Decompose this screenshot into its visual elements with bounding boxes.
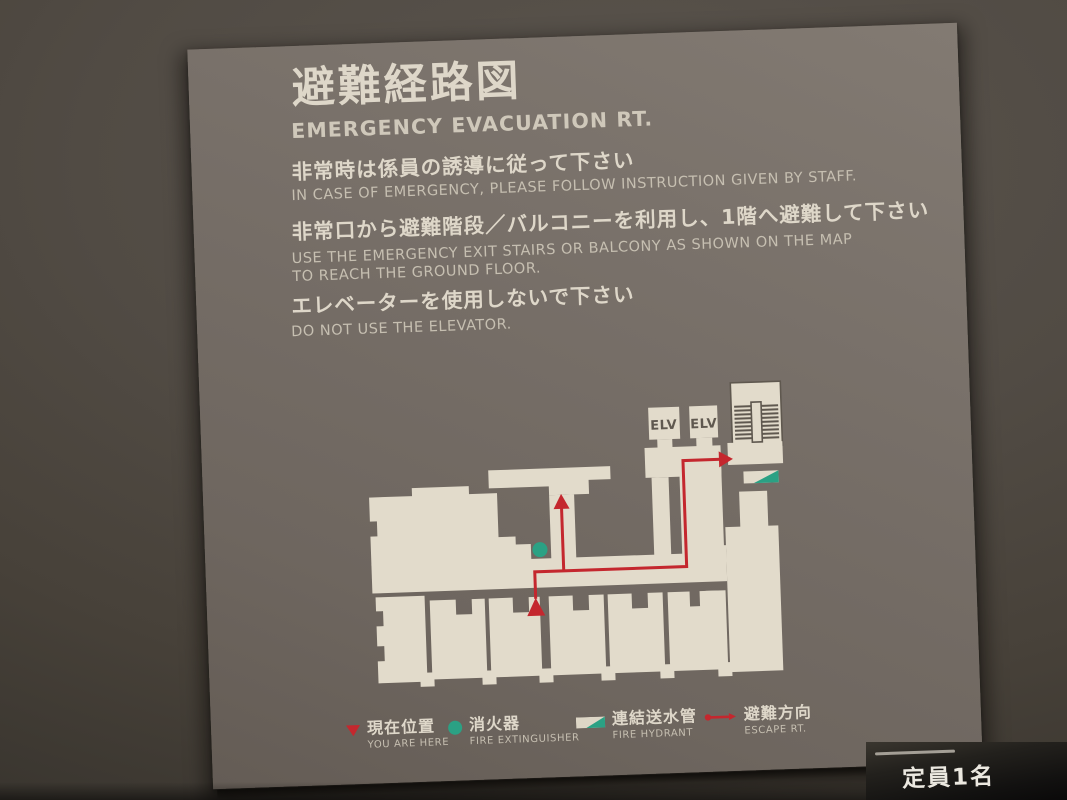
stair-rail bbox=[751, 402, 762, 442]
fire-extinguisher-dot-icon bbox=[448, 720, 462, 734]
legend-en: FIRE HYDRANT bbox=[612, 728, 697, 741]
sign-title-english: EMERGENCY EVACUATION RT. bbox=[291, 108, 654, 141]
map-room-4 bbox=[608, 592, 666, 673]
legend-jp: 現在位置 bbox=[367, 718, 449, 738]
map-room-right-lower bbox=[700, 590, 729, 668]
elevator-label-2: ELV bbox=[690, 416, 717, 432]
legend-jp: 連結送水管 bbox=[612, 708, 698, 728]
map-room-1 bbox=[430, 599, 488, 680]
fire-hydrant-marker bbox=[743, 470, 778, 483]
legend-item-fire-extinguisher: 消火器 FIRE EXTINGUISHER bbox=[448, 713, 580, 747]
current-position-triangle-icon bbox=[346, 725, 360, 736]
fire-extinguisher-marker bbox=[532, 542, 548, 558]
legend-jp: 消火器 bbox=[469, 713, 580, 734]
escape-route-arrow-icon bbox=[704, 712, 737, 722]
fire-hydrant-wedge-icon bbox=[576, 716, 605, 728]
map-room-lower-left bbox=[376, 596, 428, 684]
sign-title-japanese: 避難経路図 bbox=[291, 60, 522, 111]
legend-en: ESCAPE RT. bbox=[744, 724, 812, 736]
legend-en: FIRE EXTINGUISHER bbox=[469, 733, 579, 747]
capacity-plate: 定員1名 bbox=[866, 742, 1067, 800]
map-stairwell bbox=[725, 381, 783, 465]
elevator-label-1: ELV bbox=[650, 418, 677, 434]
legend-en: YOU ARE HERE bbox=[368, 738, 450, 751]
photo-scene: 避難経路図 EMERGENCY EVACUATION RT. 非常時は係員の誘導… bbox=[0, 0, 1067, 800]
map-elv-neck-2 bbox=[696, 438, 712, 449]
map-hall-stem-left bbox=[652, 477, 672, 556]
map-room-3 bbox=[549, 594, 607, 675]
map-elv-neck-1 bbox=[657, 439, 672, 450]
evacuation-sign-panel: 避難経路図 EMERGENCY EVACUATION RT. 非常時は係員の誘導… bbox=[187, 23, 982, 789]
capacity-plate-text: 定員1名 bbox=[901, 757, 995, 794]
map-room-right-tall bbox=[725, 525, 783, 672]
map-room-right-top bbox=[739, 491, 768, 532]
legend-item-fire-hydrant: 連結送水管 FIRE HYDRANT bbox=[576, 708, 698, 742]
instruction-3-japanese: エレベーターを使用しないで下さい bbox=[291, 284, 635, 316]
legend-item-escape-route: 避難方向 ESCAPE RT. bbox=[704, 704, 813, 738]
plate-top-edge-highlight bbox=[875, 750, 955, 756]
evacuation-floor-map: ELV ELV bbox=[350, 374, 811, 720]
instruction-3-english: DO NOT USE THE ELEVATOR. bbox=[291, 318, 512, 340]
map-balcony-bar bbox=[488, 466, 611, 497]
map-stair-entry bbox=[727, 441, 783, 465]
map-room-block-left bbox=[369, 484, 532, 566]
legend-item-current-position: 現在位置 YOU ARE HERE bbox=[346, 718, 450, 751]
legend-jp: 避難方向 bbox=[744, 704, 813, 723]
